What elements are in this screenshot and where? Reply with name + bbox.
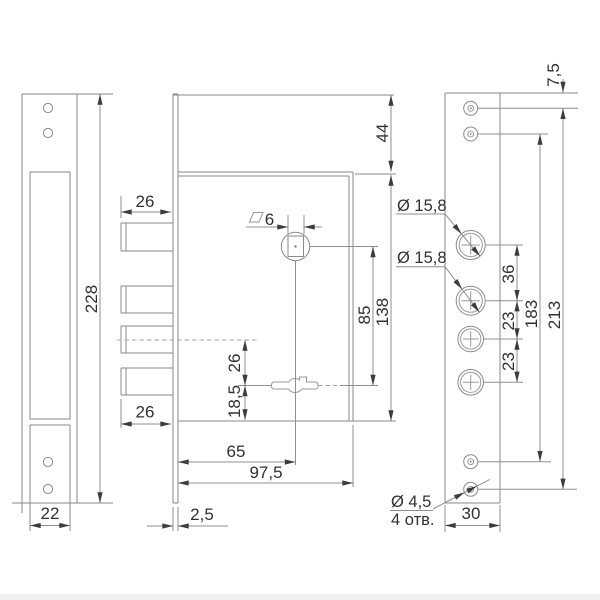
dim-36: 36 [499, 265, 518, 284]
bolt-1 [121, 223, 173, 251]
bolt-hole-d [458, 370, 484, 396]
square-symbol [250, 213, 264, 223]
technical-drawing-page: 228 22 6 26 26 26 [0, 0, 600, 600]
label-small-holes-leader1 [433, 493, 465, 510]
faceplate-outline [173, 94, 178, 503]
dim-26-bottom: 26 [136, 403, 155, 422]
keyhole [272, 377, 319, 393]
strike-plate-slot [30, 172, 70, 419]
dim-26-vert: 26 [225, 354, 244, 373]
outer-plate-outline [445, 93, 578, 503]
label-small-holes-count: 4 отв. [391, 511, 434, 529]
body-outline [178, 172, 396, 421]
dim-23b: 23 [499, 352, 518, 371]
screw-hole [43, 128, 52, 137]
outer-plate-view: 36 23 23 183 213 7,5 Ø 15,8 Ø 15,8 30 Ø … [390, 63, 578, 532]
dim-138: 138 [373, 298, 392, 326]
lock-technical-drawing: 228 22 6 26 26 26 [0, 0, 600, 600]
dim-6: 6 [265, 210, 274, 229]
screw-hole [43, 103, 52, 112]
screw-hole [43, 484, 52, 493]
dim-183: 183 [522, 300, 541, 328]
dim-22: 22 [41, 504, 60, 523]
label-hole-a-diameter: Ø 15,8 [397, 197, 447, 215]
dim-75: 7,5 [544, 63, 563, 87]
screw-hole [464, 101, 478, 115]
dim-23a: 23 [499, 312, 518, 331]
screw-hole [464, 455, 478, 469]
label-small-holes-leader2 [465, 486, 477, 492]
spindle-center-dot [294, 245, 296, 247]
screw-hole [464, 127, 478, 141]
label-hole-b-leader1 [445, 267, 462, 289]
dim-6-extensions [288, 215, 304, 234]
dim-185: 18,5 [225, 385, 244, 418]
dim-26-top: 26 [136, 192, 155, 211]
lock-body-view: 6 26 26 26 18,5 85 138 44 65 97,5 [117, 94, 396, 531]
bolt-hole-c [458, 326, 484, 352]
label-hole-a-leader1 [445, 214, 461, 234]
label-small-holes-leader3 [477, 479, 490, 486]
page-bottom-strip [0, 594, 600, 600]
dim-213: 213 [545, 301, 564, 329]
dim-65: 65 [227, 442, 246, 461]
label-hole-b-diameter: Ø 15,8 [397, 249, 447, 267]
dim-228: 228 [82, 285, 101, 313]
bolt-4 [121, 368, 173, 395]
dim-44: 44 [373, 124, 392, 143]
reference-lines [238, 247, 378, 466]
screw-hole [43, 457, 52, 466]
label-small-holes-diameter: Ø 4,5 [391, 493, 431, 511]
dim-25: 2,5 [190, 505, 214, 524]
bolt-2 [121, 286, 173, 313]
dim-30: 30 [462, 504, 481, 523]
dim-25-extensions [173, 507, 178, 531]
dim-85: 85 [355, 306, 374, 325]
strike-plate-view: 228 22 [12, 94, 113, 531]
dim-975: 97,5 [249, 463, 282, 482]
